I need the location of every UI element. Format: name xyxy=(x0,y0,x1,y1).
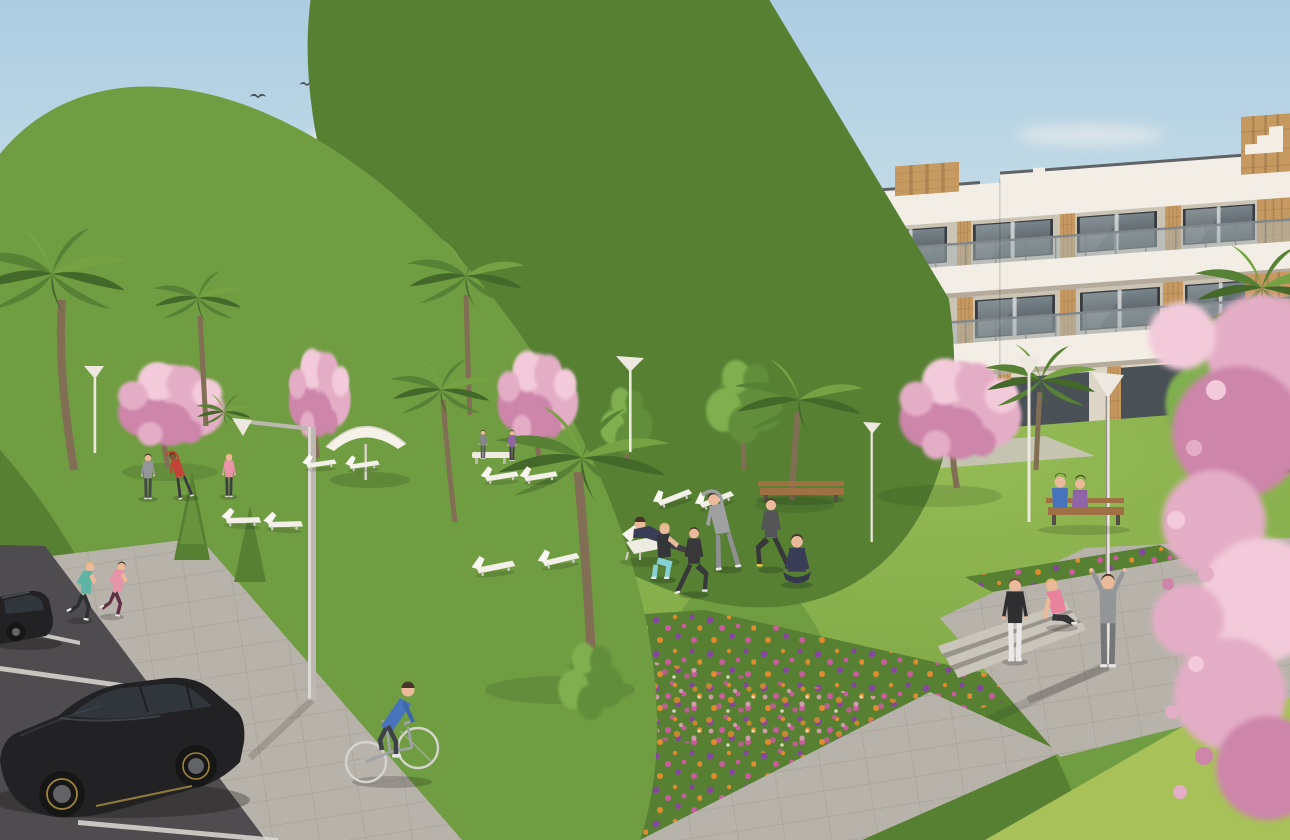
render-image xyxy=(0,0,1290,840)
warm-light-overlay xyxy=(0,0,1290,840)
